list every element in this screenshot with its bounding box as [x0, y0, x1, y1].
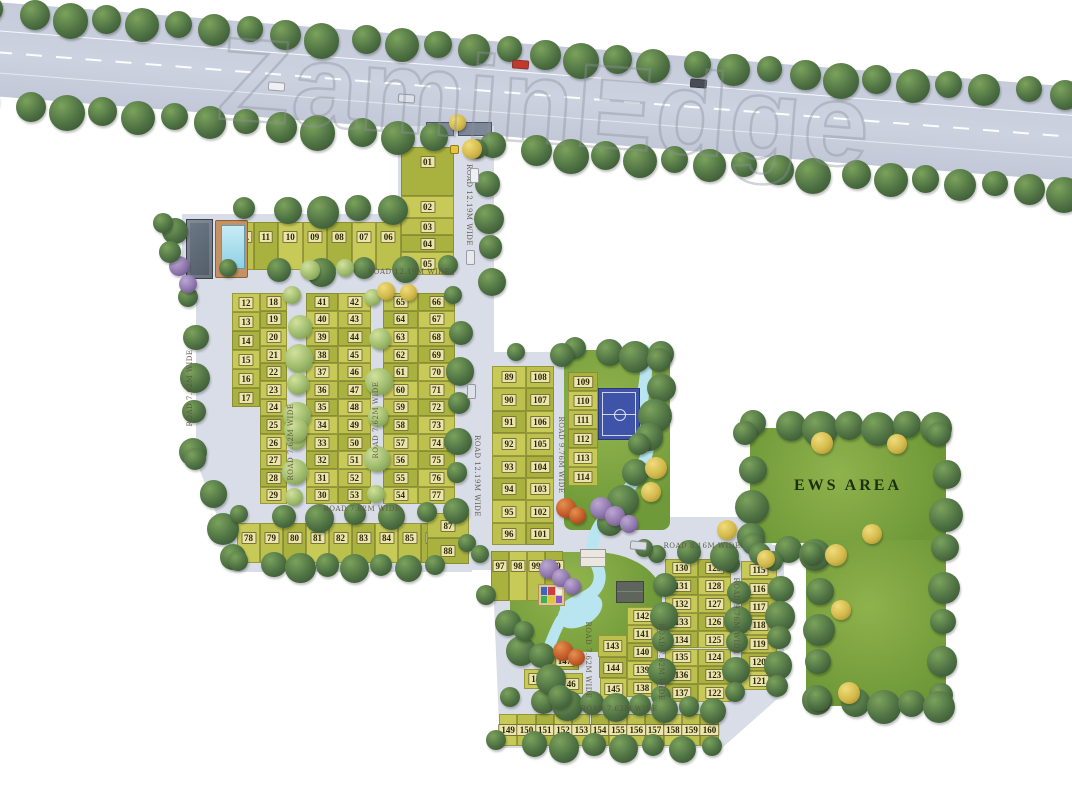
- plot-number: 18: [266, 296, 281, 308]
- tree: [568, 649, 585, 666]
- plot-number: 45: [347, 349, 362, 361]
- plot-number: 16: [239, 373, 254, 385]
- tree: [874, 163, 908, 197]
- plot-number: 15: [239, 354, 254, 366]
- tree: [935, 71, 962, 98]
- plot-number: 36: [315, 384, 330, 396]
- plot-number: 49: [347, 419, 362, 431]
- plot-number: 125: [705, 634, 725, 646]
- tree: [982, 171, 1008, 197]
- car: [630, 540, 648, 550]
- plot-number: 143: [603, 640, 623, 652]
- plot-number: 124: [705, 651, 725, 663]
- plot-143: 143: [598, 635, 627, 657]
- plot-number: 156: [626, 724, 646, 736]
- plot-number: 11: [258, 231, 273, 243]
- plot-number: 76: [429, 472, 444, 484]
- tree: [266, 112, 297, 143]
- tree: [345, 195, 371, 221]
- plot-number: 33: [315, 437, 330, 449]
- plot-52: 52: [338, 469, 371, 487]
- tree: [645, 457, 667, 479]
- road-label-south-976: ROAD 9.76M WIDE: [732, 577, 740, 654]
- plot-number: 77: [429, 489, 444, 501]
- playground: [538, 584, 565, 606]
- road-label-south-b: ROAD 7.62M WIDE: [657, 623, 665, 700]
- plot-number: 37: [315, 366, 330, 378]
- ews-area-label: EWS AREA: [750, 428, 946, 543]
- plot-number: 135: [672, 651, 692, 663]
- tree: [609, 734, 638, 763]
- car: [470, 168, 479, 183]
- plot-114: 114: [568, 467, 598, 486]
- tree: [444, 428, 471, 455]
- tree: [790, 60, 821, 91]
- plot-number: 59: [393, 401, 408, 413]
- plot-01: 01: [401, 147, 454, 196]
- plot-number: 27: [266, 454, 281, 466]
- tree: [548, 685, 572, 709]
- plot-89: 89: [492, 366, 526, 388]
- plot-number: 107: [530, 394, 550, 406]
- plot-number: 104: [530, 461, 550, 473]
- plot-number: 95: [502, 506, 517, 518]
- plot-14: 14: [232, 331, 260, 350]
- tree: [447, 462, 467, 482]
- plot-90: 90: [492, 388, 526, 410]
- plot-127: 127: [698, 595, 731, 613]
- plot-number: 138: [633, 682, 653, 694]
- plot-number: 44: [347, 331, 362, 343]
- tree: [287, 373, 309, 395]
- plot-number: 73: [429, 419, 444, 431]
- plot-number: 58: [393, 419, 408, 431]
- plot-number: 81: [310, 532, 325, 544]
- plot-29: 29: [260, 487, 287, 505]
- road-label-south-horiz: ROAD 7.62M WIDE: [580, 705, 657, 713]
- plot-92: 92: [492, 433, 526, 455]
- tree: [92, 5, 121, 34]
- plot-91: 91: [492, 411, 526, 433]
- tree: [647, 348, 671, 372]
- plot-number: 97: [493, 560, 508, 572]
- road-label-south-a: ROAD 7.62M WIDE: [584, 621, 592, 698]
- tree: [653, 573, 677, 597]
- tree: [838, 682, 860, 704]
- plot-number: 67: [429, 313, 444, 325]
- tree: [474, 204, 505, 235]
- tree: [896, 69, 930, 103]
- plot-number: 21: [266, 349, 281, 361]
- plot-43: 43: [338, 311, 371, 329]
- tree: [553, 139, 589, 175]
- plot-number: 96: [502, 528, 517, 540]
- plot-number: 31: [315, 472, 330, 484]
- plot-number: 160: [700, 724, 720, 736]
- tree: [766, 675, 788, 697]
- plot-number: 88: [441, 545, 456, 557]
- plot-49: 49: [338, 416, 371, 434]
- plot-55: 55: [383, 469, 418, 487]
- tree: [348, 118, 377, 147]
- road-label-entry-lower: ROAD 12.19M WIDE: [473, 435, 481, 517]
- tree: [53, 3, 89, 39]
- tree: [370, 554, 392, 576]
- plot-number: 62: [393, 349, 408, 361]
- road-label-mid-a: ROAD 7.62M WIDE: [287, 403, 295, 480]
- sports-court: [598, 388, 640, 440]
- clubhouse-building: [186, 219, 213, 279]
- plot-number: 13: [239, 316, 254, 328]
- tree: [582, 733, 606, 757]
- plot-number: 66: [429, 296, 444, 308]
- plot-number: 52: [347, 472, 362, 484]
- plot-number: 105: [530, 438, 550, 450]
- plot-32: 32: [306, 451, 338, 469]
- court-center-circle: [614, 409, 626, 421]
- plot-101: 101: [526, 523, 554, 545]
- plot-102: 102: [526, 500, 554, 522]
- tree: [530, 40, 561, 71]
- plot-13: 13: [232, 312, 260, 331]
- plot-number: 128: [705, 580, 725, 592]
- tree: [121, 101, 155, 135]
- tree: [825, 544, 847, 566]
- tree: [88, 97, 117, 126]
- plot-number: 159: [681, 724, 701, 736]
- plot-113: 113: [568, 448, 598, 467]
- plot-98: 98: [509, 551, 527, 601]
- plot-number: 35: [315, 401, 330, 413]
- plot-number: 141: [633, 628, 653, 640]
- plot-45: 45: [338, 346, 371, 364]
- tree: [1016, 76, 1042, 102]
- tree: [927, 646, 958, 677]
- tree: [316, 553, 340, 577]
- plot-64: 64: [383, 311, 418, 329]
- tree: [395, 555, 422, 582]
- plot-number: 22: [266, 366, 281, 378]
- plot-number: 17: [239, 392, 254, 404]
- plot-number: 110: [573, 395, 592, 407]
- tree: [274, 197, 301, 224]
- tree: [722, 657, 749, 684]
- tree: [569, 507, 586, 524]
- tree: [443, 498, 469, 524]
- tree: [931, 534, 958, 561]
- plot-number: 03: [420, 221, 435, 233]
- plot-104: 104: [526, 456, 554, 478]
- plot-106: 106: [526, 411, 554, 433]
- plot-number: 51: [347, 454, 362, 466]
- plot-16: 16: [232, 369, 260, 388]
- tree: [479, 235, 503, 259]
- tree: [731, 152, 757, 178]
- plot-number: 111: [574, 414, 593, 426]
- tree: [912, 165, 939, 192]
- plot-number: 109: [573, 376, 593, 388]
- plot-number: 74: [429, 437, 444, 449]
- car: [467, 384, 476, 399]
- tree: [717, 54, 749, 86]
- plot-107: 107: [526, 388, 554, 410]
- plot-35: 35: [306, 399, 338, 417]
- tree: [16, 92, 47, 123]
- road-label-mid-b: ROAD 7.62M WIDE: [372, 381, 380, 458]
- tree: [272, 505, 296, 529]
- tree: [261, 552, 287, 578]
- tree: [237, 16, 263, 42]
- plot-number: 116: [749, 583, 768, 595]
- tree: [700, 698, 726, 724]
- tree: [757, 56, 783, 82]
- plot-number: 92: [502, 438, 517, 450]
- tree: [735, 490, 769, 524]
- tree: [381, 121, 415, 155]
- tree: [449, 114, 466, 131]
- plot-53: 53: [338, 487, 371, 505]
- plot-number: 119: [749, 638, 768, 650]
- plot-109: 109: [568, 372, 598, 391]
- plot-number: 02: [420, 201, 435, 213]
- car: [512, 59, 530, 69]
- tree: [184, 448, 206, 470]
- plot-58: 58: [383, 416, 418, 434]
- tree: [340, 554, 369, 583]
- tree: [803, 614, 835, 646]
- plot-number: 53: [347, 489, 362, 501]
- plot-number: 126: [705, 616, 725, 628]
- tree: [928, 572, 960, 604]
- plot-number: 55: [393, 472, 408, 484]
- plot-number: 57: [393, 437, 408, 449]
- plot-number: 07: [356, 231, 371, 243]
- plot-number: 102: [530, 506, 550, 518]
- plot-number: 113: [573, 452, 592, 464]
- plot-number: 98: [511, 560, 526, 572]
- plot-number: 84: [379, 532, 394, 544]
- plot-number: 83: [356, 532, 371, 544]
- tree: [823, 63, 859, 99]
- tree: [449, 321, 473, 345]
- tree: [183, 325, 209, 351]
- plot-number: 158: [663, 724, 683, 736]
- tree: [647, 374, 676, 403]
- tree: [795, 158, 831, 194]
- plot-number: 20: [266, 331, 281, 343]
- tree: [807, 687, 831, 711]
- tree: [702, 736, 722, 756]
- tree: [521, 135, 552, 166]
- plot-number: 94: [502, 483, 517, 495]
- tree: [478, 268, 507, 297]
- plot-number: 140: [633, 646, 653, 658]
- plot-59: 59: [383, 399, 418, 417]
- tree: [927, 422, 951, 446]
- plot-number: 48: [347, 401, 362, 413]
- tree: [194, 106, 226, 138]
- road-label-east: ROAD 8.16M WIDE: [663, 542, 740, 550]
- tree: [801, 542, 823, 564]
- road-label-north: ROAD 12.19M WIDE: [368, 268, 450, 276]
- plot-number: 28: [266, 472, 281, 484]
- plot-number: 10: [283, 231, 298, 243]
- tree: [1014, 174, 1045, 205]
- plot-number: 60: [393, 384, 408, 396]
- plot-number: 101: [530, 528, 550, 540]
- tree: [669, 736, 696, 763]
- plot-34: 34: [306, 416, 338, 434]
- plot-number: 14: [239, 335, 254, 347]
- plot-103: 103: [526, 478, 554, 500]
- plot-41: 41: [306, 293, 338, 311]
- plot-number: 114: [573, 471, 592, 483]
- tree: [768, 576, 794, 602]
- plot-number: 43: [347, 313, 362, 325]
- car: [268, 81, 286, 91]
- plot-62: 62: [383, 346, 418, 364]
- plot-number: 23: [266, 384, 281, 396]
- plot-108: 108: [526, 366, 554, 388]
- plot-110: 110: [568, 391, 598, 410]
- tree: [476, 585, 496, 605]
- tree: [806, 578, 833, 605]
- car: [466, 250, 475, 265]
- plot-number: 30: [315, 489, 330, 501]
- plot-number: 01: [420, 156, 435, 168]
- plot-number: 46: [347, 366, 362, 378]
- tree: [285, 553, 316, 584]
- plot-number: 69: [429, 349, 444, 361]
- plot-number: 85: [402, 532, 417, 544]
- tree: [930, 609, 956, 635]
- plot-15: 15: [232, 350, 260, 369]
- car: [398, 93, 416, 103]
- plot-number: 79: [264, 532, 279, 544]
- plot-19: 19: [260, 311, 287, 329]
- plot-31: 31: [306, 469, 338, 487]
- plot-57: 57: [383, 434, 418, 452]
- plot-67: 67: [418, 311, 455, 329]
- tree: [1046, 177, 1072, 213]
- plot-number: 42: [347, 296, 362, 308]
- plot-105: 105: [526, 433, 554, 455]
- tree: [20, 0, 51, 30]
- tree: [233, 109, 259, 135]
- tree: [564, 578, 581, 595]
- tree: [944, 169, 976, 201]
- tree: [636, 49, 670, 83]
- plot-number: 103: [530, 483, 550, 495]
- plot-number: 26: [266, 437, 281, 449]
- plot-number: 90: [502, 394, 517, 406]
- tree: [307, 196, 339, 228]
- plot-number: 134: [672, 634, 692, 646]
- plot-number: 32: [315, 454, 330, 466]
- plot-number: 70: [429, 366, 444, 378]
- plot-20: 20: [260, 328, 287, 346]
- plot-23: 23: [260, 381, 287, 399]
- plot-number: 06: [381, 231, 396, 243]
- tree: [352, 25, 381, 54]
- tree: [693, 149, 725, 181]
- plot-number: 112: [573, 433, 592, 445]
- plot-36: 36: [306, 381, 338, 399]
- tree: [550, 343, 574, 367]
- plot-number: 127: [705, 598, 725, 610]
- tree: [270, 20, 301, 51]
- tree: [898, 690, 925, 717]
- plot-02: 02: [401, 196, 454, 218]
- plot-number: 64: [393, 313, 408, 325]
- plot-number: 68: [429, 331, 444, 343]
- tree: [159, 241, 181, 263]
- tree: [304, 23, 340, 59]
- site-plan: EWS AREA ROAD 12.19M WIDE ROAD 12.19M WI…: [0, 0, 1072, 792]
- plot-21: 21: [260, 346, 287, 364]
- tree: [288, 315, 312, 339]
- ews-area: EWS AREA: [750, 428, 946, 543]
- plot-48: 48: [338, 399, 371, 417]
- plot-number: 80: [287, 532, 302, 544]
- plot-number: 47: [347, 384, 362, 396]
- plot-94: 94: [492, 478, 526, 500]
- plot-04: 04: [401, 235, 454, 252]
- plot-54: 54: [383, 487, 418, 505]
- plot-number: 38: [315, 349, 330, 361]
- plot-number: 75: [429, 454, 444, 466]
- road-label-976: ROAD 9.76M WIDE: [557, 416, 565, 493]
- plot-33: 33: [306, 434, 338, 452]
- tree: [623, 144, 657, 178]
- tree: [497, 36, 523, 62]
- plot-number: 12: [239, 297, 254, 309]
- tree: [642, 734, 664, 756]
- tree: [563, 43, 599, 79]
- plot-number: 144: [603, 662, 623, 674]
- tree: [49, 95, 85, 131]
- plot-number: 91: [502, 416, 517, 428]
- plot-number: 61: [393, 366, 408, 378]
- plot-number: 41: [315, 296, 330, 308]
- tree: [733, 421, 757, 445]
- plot-number: 39: [315, 331, 330, 343]
- tree: [923, 691, 955, 723]
- plot-144: 144: [599, 657, 627, 678]
- tree: [867, 690, 901, 724]
- plot-number: 78: [241, 532, 256, 544]
- plot-number: 123: [705, 669, 725, 681]
- tree: [603, 45, 632, 74]
- entrance-sign: [450, 145, 459, 154]
- tree: [805, 649, 831, 675]
- plot-number: 19: [266, 313, 281, 325]
- plot-number: 50: [347, 437, 362, 449]
- plot-03: 03: [401, 218, 454, 235]
- tree: [165, 11, 192, 38]
- plot-number: 29: [266, 489, 281, 501]
- tree: [679, 696, 699, 716]
- plot-number: 34: [315, 419, 330, 431]
- plot-number: 63: [393, 331, 408, 343]
- tree: [420, 123, 447, 150]
- plot-26: 26: [260, 434, 287, 452]
- plot-112: 112: [568, 429, 598, 448]
- tree: [549, 732, 580, 763]
- tree: [161, 103, 188, 130]
- plot-number: 93: [502, 461, 517, 473]
- tree: [661, 146, 688, 173]
